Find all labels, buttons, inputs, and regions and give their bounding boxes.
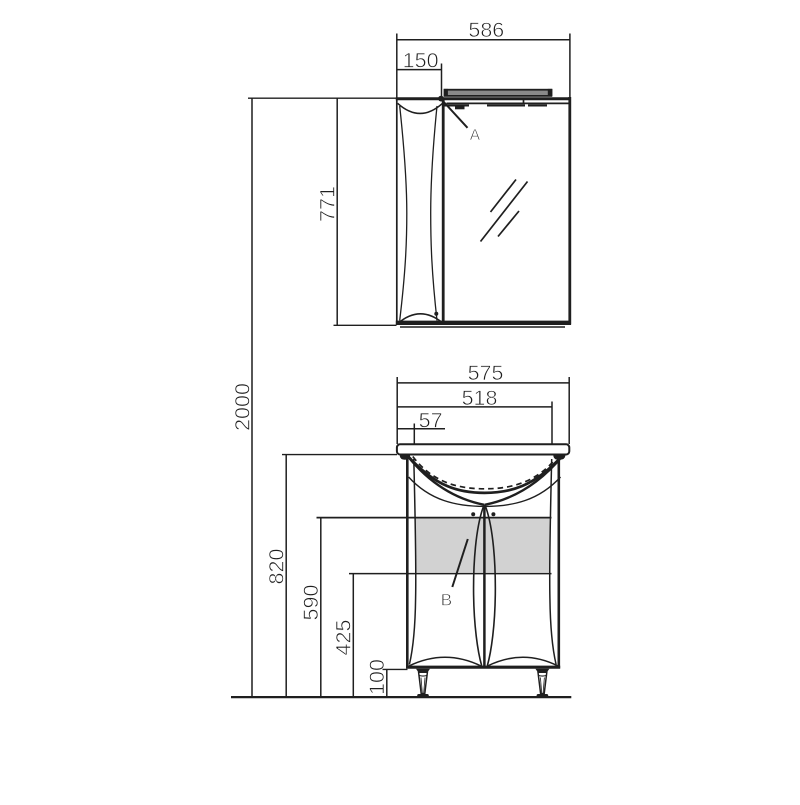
svg-text:575: 575 [468,361,504,385]
svg-text:586: 586 [468,18,504,42]
svg-text:A: A [470,127,481,144]
svg-text:771: 771 [316,186,340,222]
svg-text:425: 425 [332,620,356,656]
svg-text:B: B [441,591,452,610]
svg-text:100: 100 [365,659,389,695]
svg-text:2000: 2000 [230,383,254,431]
svg-text:57: 57 [419,409,443,433]
svg-text:590: 590 [299,585,323,621]
svg-text:820: 820 [265,549,289,585]
svg-text:150: 150 [403,48,439,72]
svg-text:518: 518 [462,386,498,410]
